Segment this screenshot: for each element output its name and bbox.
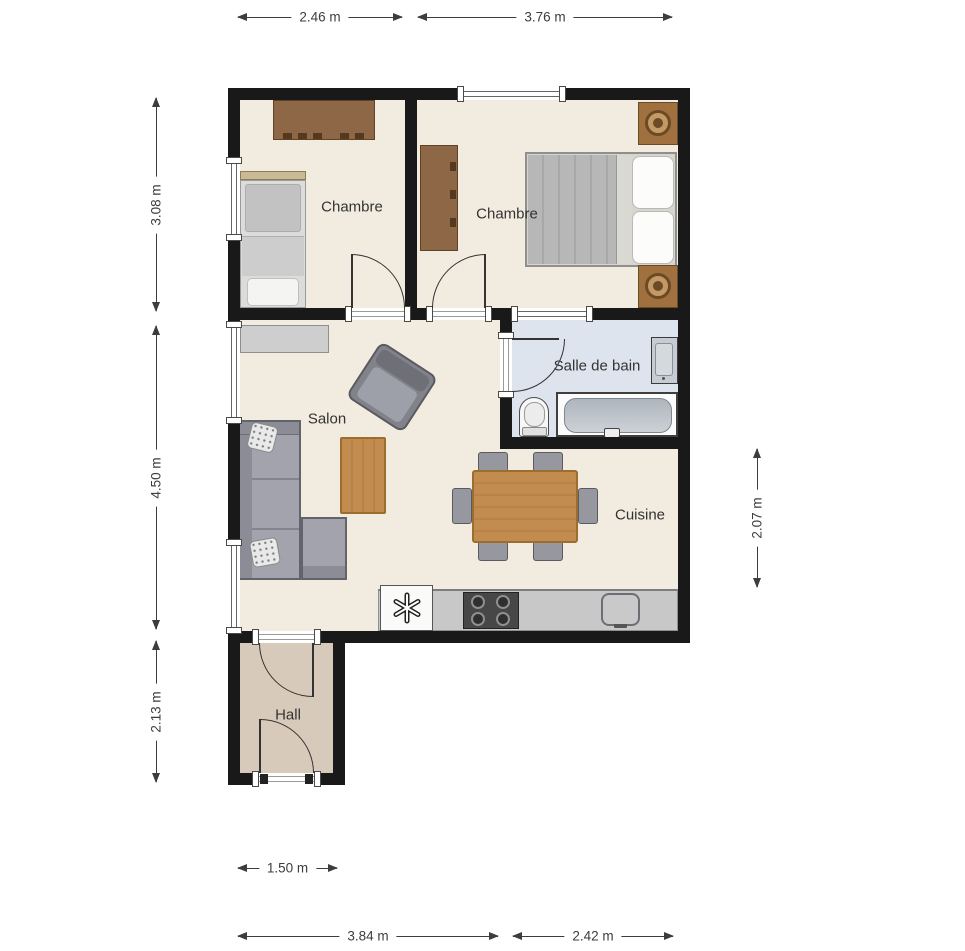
arrowhead-icon <box>152 302 160 312</box>
arrowhead-icon <box>393 13 403 21</box>
arrowhead-icon <box>152 97 160 107</box>
door-jamb <box>252 771 259 787</box>
arrowhead-icon <box>152 773 160 783</box>
double-bed-pillow <box>632 156 674 209</box>
door-jamb <box>314 629 321 645</box>
room-label-cuisine: Cuisine <box>615 507 665 524</box>
double-bed-blanket-fold <box>616 155 632 264</box>
arrowhead-icon <box>152 640 160 650</box>
desk-knob <box>283 133 292 139</box>
washing-machine-door <box>655 343 673 376</box>
dimension-value: 2.46 m <box>291 10 348 25</box>
window-jamb <box>511 306 518 322</box>
sink-tap-icon <box>614 624 627 628</box>
door-jamb <box>345 306 352 322</box>
dimension-left-bedrooms: 3.08 m <box>149 97 163 312</box>
arrowhead-icon <box>152 620 160 630</box>
single-bed-headboard <box>240 171 306 180</box>
stove-burner-icon <box>471 612 485 626</box>
dimension-right-kitchen: 2.07 m <box>750 448 764 588</box>
interior-window <box>517 308 587 320</box>
dimension-top-right: 3.76 m <box>417 10 673 24</box>
dining-table <box>472 470 578 543</box>
arrowhead-icon <box>753 578 761 588</box>
lamp-icon-center <box>653 281 663 291</box>
window-jamb <box>559 86 566 102</box>
arrowhead-icon <box>417 13 427 21</box>
arrowhead-icon <box>328 864 338 872</box>
door-opening <box>258 631 315 643</box>
coffee-table <box>340 437 386 514</box>
stove-burner-icon <box>496 612 510 626</box>
toilet-tank <box>522 427 547 436</box>
wall-right <box>678 88 690 643</box>
room-label-salon: Salon <box>308 411 346 428</box>
desk-knob <box>355 133 364 139</box>
dimension-bottom-left: 3.84 m <box>237 929 499 943</box>
door-leaf <box>512 338 559 340</box>
washing-machine-knob <box>662 377 665 380</box>
dresser-knob <box>450 162 456 171</box>
desk-knob <box>298 133 307 139</box>
toilet <box>519 397 549 437</box>
door-leaf <box>312 643 314 697</box>
dimension-value: 2.42 m <box>564 929 621 944</box>
desk-knob <box>340 133 349 139</box>
door-jamb <box>426 306 433 322</box>
sofa-chaise-backrest <box>303 566 345 578</box>
arrowhead-icon <box>753 448 761 458</box>
window-jamb <box>226 539 242 546</box>
door-jamb <box>404 306 411 322</box>
sofa-cushion-line <box>252 528 299 530</box>
arrowhead-icon <box>237 13 247 21</box>
door-opening <box>432 308 486 320</box>
sofa-chaise-seat <box>303 519 345 566</box>
dimension-left-hall: 2.13 m <box>149 640 163 783</box>
window-jamb <box>226 321 242 328</box>
window <box>228 545 240 628</box>
sofa-cushion-line <box>252 478 299 480</box>
dimension-value: 3.08 m <box>149 176 164 233</box>
window-jamb <box>457 86 464 102</box>
sideboard <box>240 325 329 353</box>
arrowhead-icon <box>237 864 247 872</box>
window-jamb <box>226 234 242 241</box>
stove-burner-icon <box>471 595 485 609</box>
door-jamb <box>314 771 321 787</box>
dresser-knob <box>450 218 456 227</box>
arrowhead-icon <box>152 325 160 335</box>
dining-chair <box>533 452 563 472</box>
entrance-sill-block <box>305 774 313 784</box>
dining-chair <box>578 488 598 524</box>
window-jamb <box>586 306 593 322</box>
arrowhead-icon <box>237 932 247 940</box>
sofa-backrest <box>239 435 252 578</box>
window <box>228 163 240 235</box>
room-label-hall: Hall <box>275 707 301 724</box>
arrowhead-icon <box>489 932 499 940</box>
entrance-sill-block <box>260 774 268 784</box>
dimension-value: 2.07 m <box>750 489 765 546</box>
bathtub <box>556 392 678 437</box>
room-label-salle-de-bain: Salle de bain <box>554 358 641 375</box>
dining-chair <box>478 452 508 472</box>
window <box>463 88 560 100</box>
dimension-value: 4.50 m <box>149 449 164 506</box>
dimension-top-left: 2.46 m <box>237 10 403 24</box>
dining-chair <box>533 541 563 561</box>
window <box>228 327 240 418</box>
fridge-freezer <box>380 585 433 631</box>
lamp-icon-center <box>653 118 663 128</box>
dimension-value: 3.84 m <box>339 929 396 944</box>
dimension-value: 3.76 m <box>516 10 573 25</box>
door-leaf <box>259 719 261 773</box>
fridge-freezer-icon <box>389 590 425 626</box>
dimension-bottom-right: 2.42 m <box>512 929 674 943</box>
window-jamb <box>226 417 242 424</box>
dining-chair <box>452 488 472 524</box>
wall-bathroom-bottom <box>500 437 690 449</box>
door-jamb <box>485 306 492 322</box>
kitchen-sink <box>601 593 640 626</box>
stove-burner-icon <box>496 595 510 609</box>
dimension-hall-width: 1.50 m <box>237 861 338 875</box>
toilet-bowl <box>524 402 545 427</box>
dimension-value: 1.50 m <box>259 861 316 876</box>
dresser-knob <box>450 190 456 199</box>
room-label-chambre-1: Chambre <box>321 199 383 216</box>
double-bed-pillow <box>632 211 674 264</box>
wall-bedroom-divider <box>405 88 417 320</box>
door-jamb <box>252 629 259 645</box>
arrowhead-icon <box>663 13 673 21</box>
dining-chair <box>478 541 508 561</box>
window-jamb <box>226 157 242 164</box>
door-opening <box>351 308 405 320</box>
door-leaf <box>351 254 353 308</box>
dimension-value: 2.13 m <box>149 683 164 740</box>
sofa-pillow <box>249 537 281 568</box>
room-label-chambre-2: Chambre <box>476 206 538 223</box>
wall-hall-right <box>333 631 345 785</box>
desk-knob <box>313 133 322 139</box>
dimension-left-living: 4.50 m <box>149 325 163 630</box>
arrowhead-icon <box>512 932 522 940</box>
floor-plan: Chambre Chambre Salle de bain Salon Cuis… <box>0 0 965 951</box>
single-bed-foot-cover <box>247 278 299 306</box>
door-opening <box>500 338 512 392</box>
double-bed-blanket <box>528 155 616 264</box>
single-bed-pillow <box>245 184 301 232</box>
washing-machine <box>651 337 678 384</box>
single-bed-blanket <box>242 236 304 276</box>
window-jamb <box>226 627 242 634</box>
door-leaf <box>484 254 486 308</box>
arrowhead-icon <box>664 932 674 940</box>
door-jamb <box>498 391 514 398</box>
